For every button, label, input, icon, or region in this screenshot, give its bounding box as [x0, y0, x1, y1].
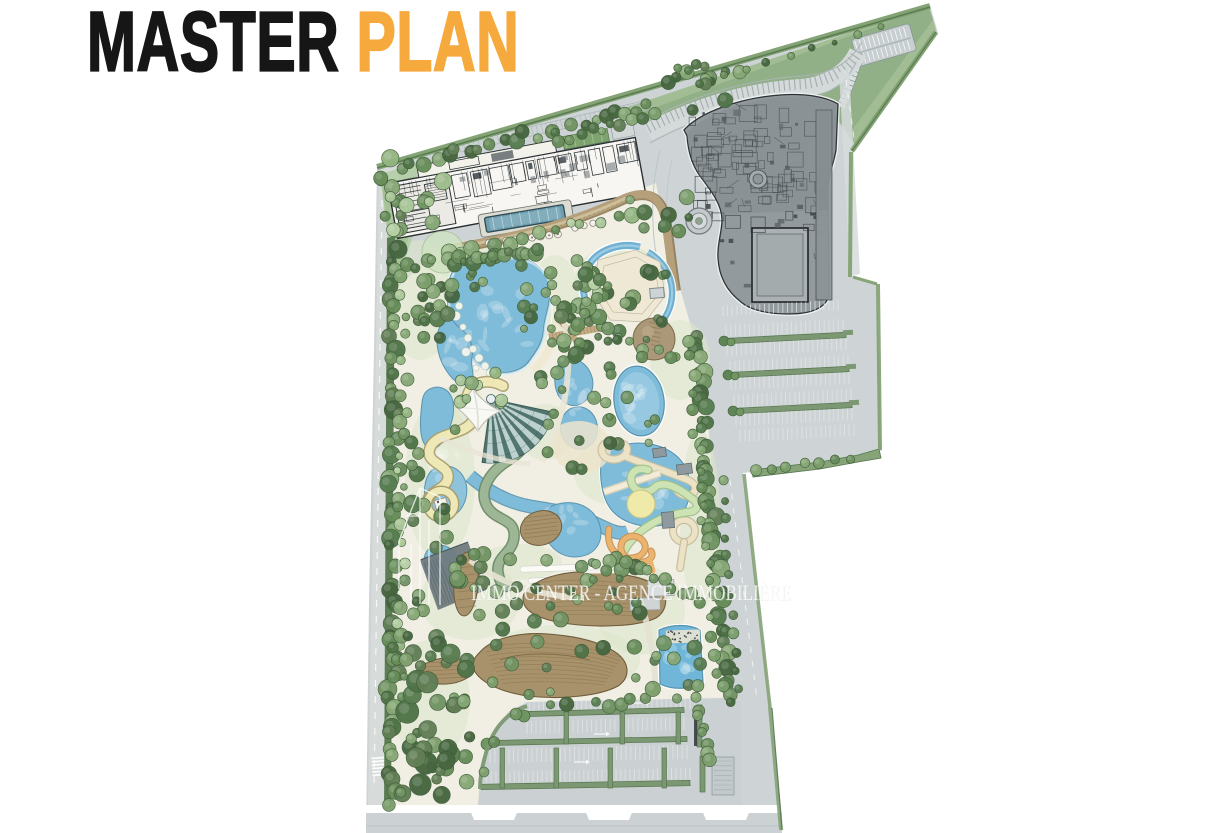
svg-text:IMMO CENTER - AGENCE IMMOBILIÈ: IMMO CENTER - AGENCE IMMOBILIÈRE	[471, 580, 791, 605]
